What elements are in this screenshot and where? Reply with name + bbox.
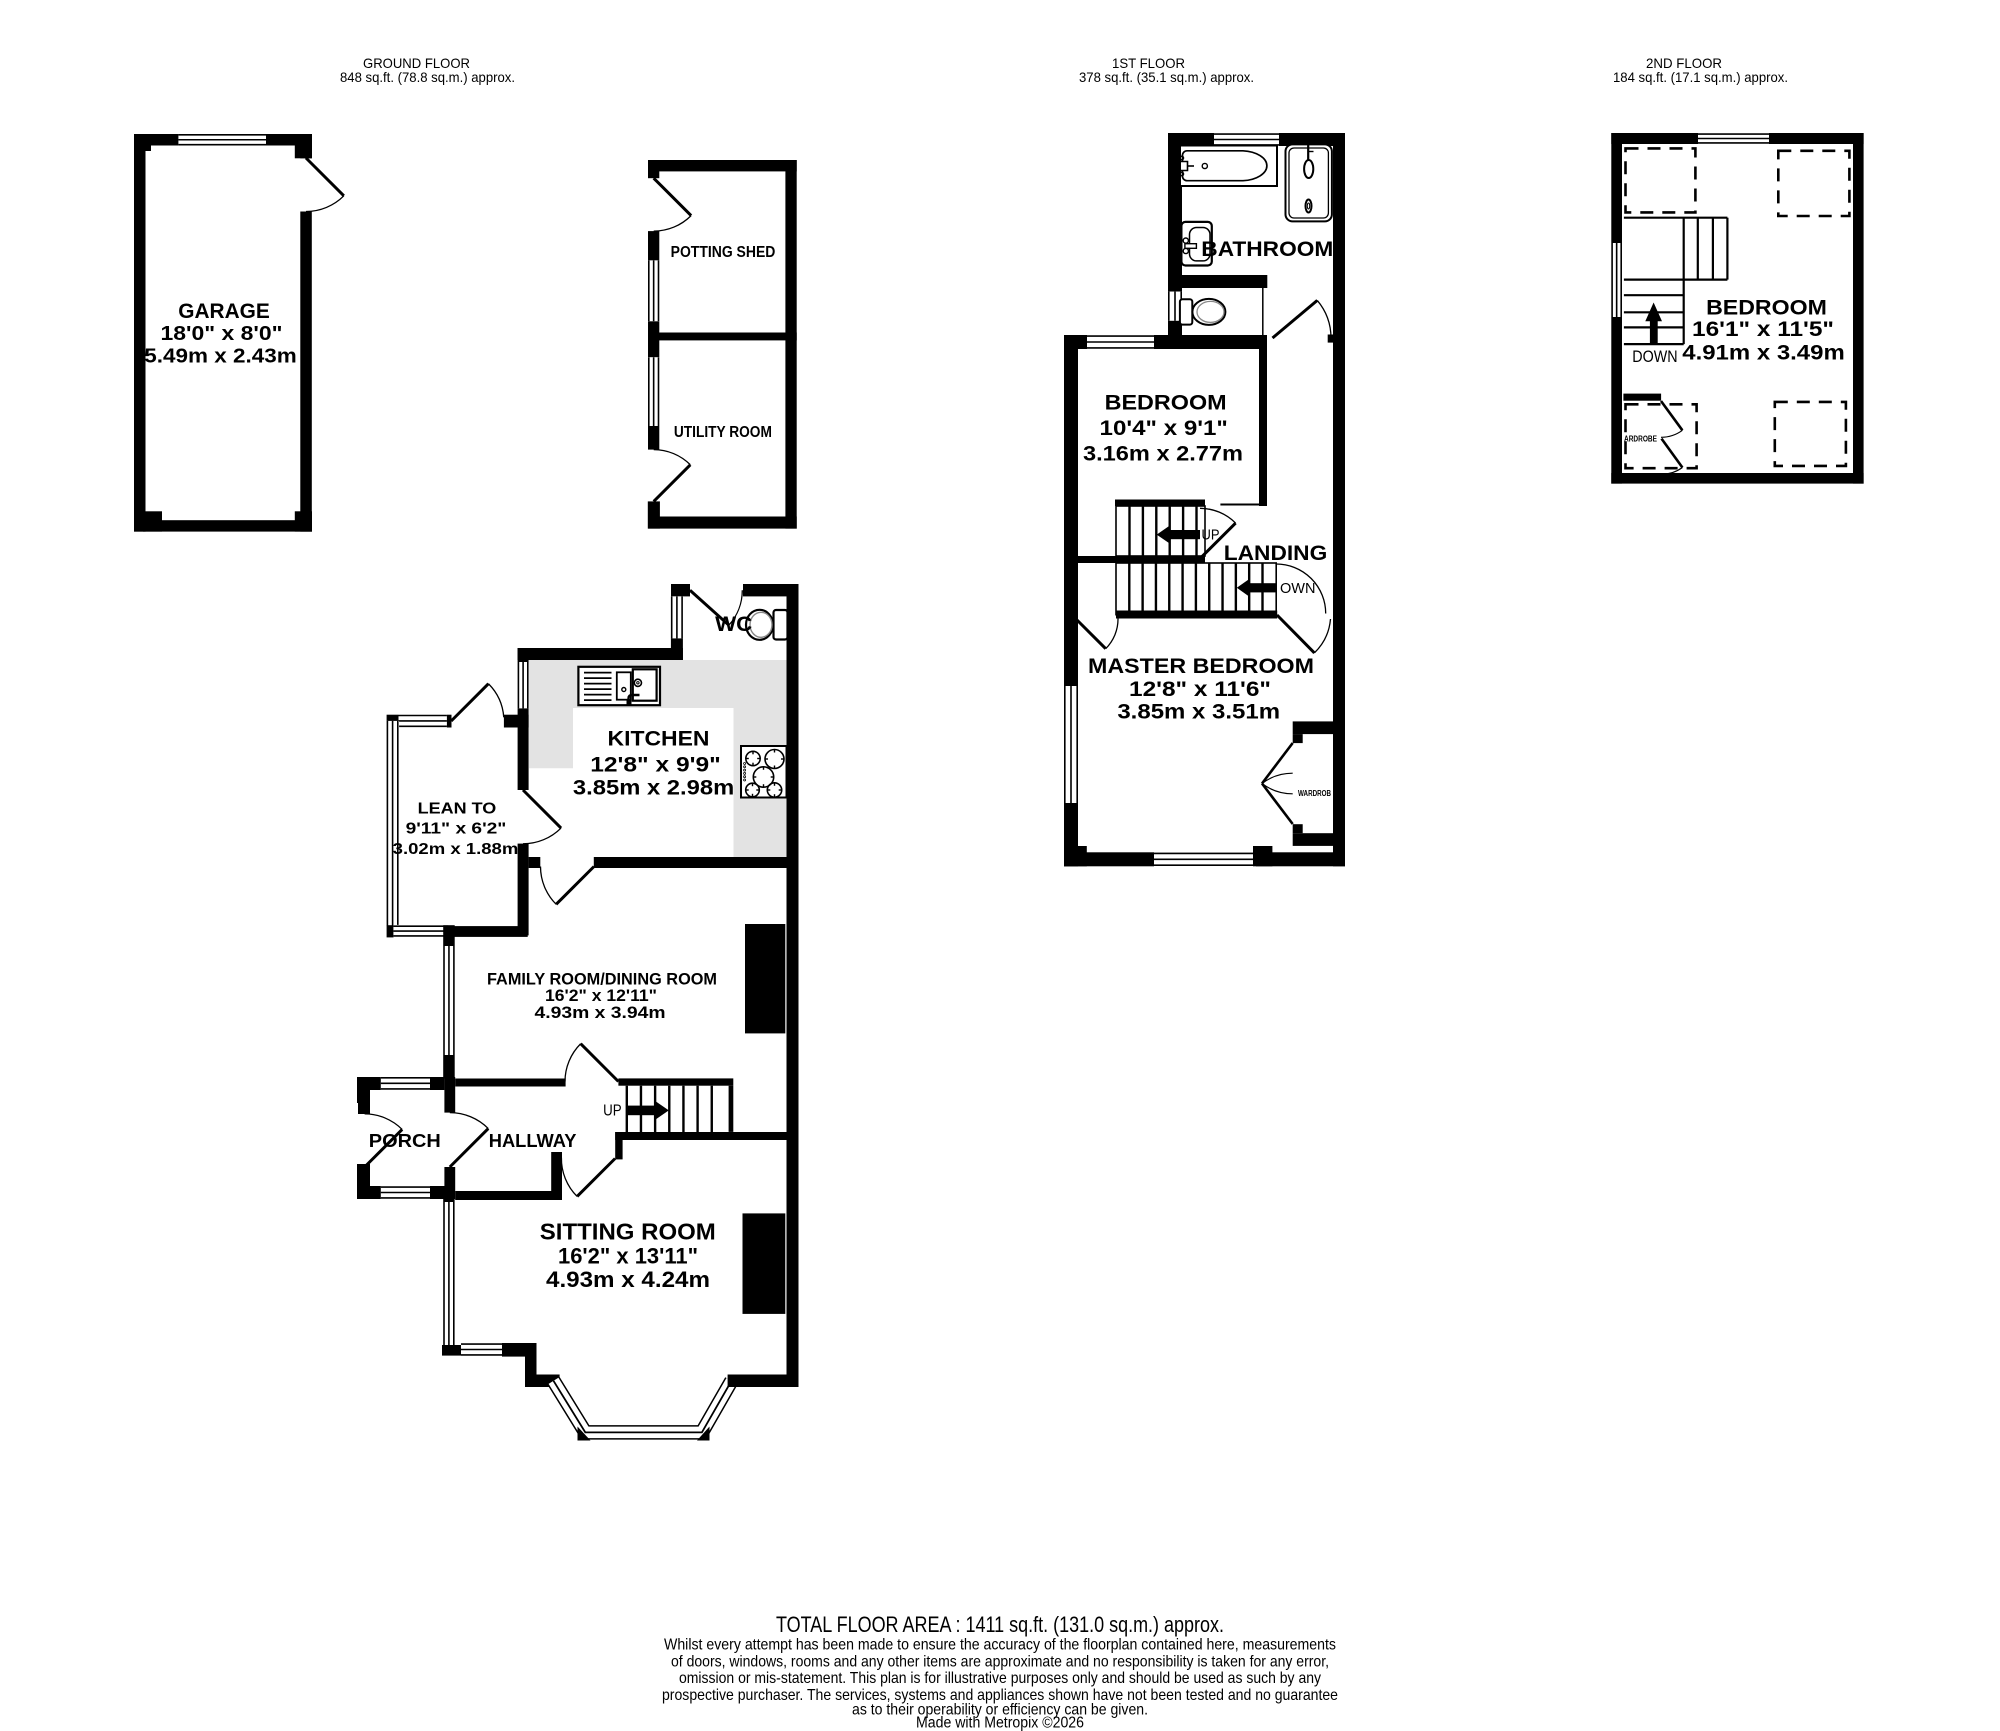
svg-text:16'2" x 13'11": 16'2" x 13'11" bbox=[558, 1244, 698, 1269]
svg-text:5.49m x 2.43m: 5.49m x 2.43m bbox=[144, 346, 297, 368]
svg-text:378 sq.ft. (35.1 sq.m.) approx: 378 sq.ft. (35.1 sq.m.) approx. bbox=[1079, 69, 1254, 85]
svg-text:OWN: OWN bbox=[1280, 580, 1316, 597]
svg-text:WC: WC bbox=[715, 613, 752, 636]
svg-text:4.93m x 3.94m: 4.93m x 3.94m bbox=[535, 1003, 666, 1022]
svg-text:LEAN TO: LEAN TO bbox=[418, 801, 497, 818]
svg-text:GARAGE: GARAGE bbox=[178, 300, 270, 323]
svg-text:BATHROOM: BATHROOM bbox=[1201, 238, 1333, 261]
svg-text:DOWN: DOWN bbox=[1632, 347, 1677, 366]
svg-text:HALLWAY: HALLWAY bbox=[489, 1131, 577, 1151]
svg-text:9'11" x 6'2": 9'11" x 6'2" bbox=[406, 821, 507, 838]
svg-text:12'8" x 9'9": 12'8" x 9'9" bbox=[590, 754, 721, 777]
svg-text:3.02m x 1.88m: 3.02m x 1.88m bbox=[393, 841, 519, 858]
svg-text:BEDROOM: BEDROOM bbox=[1706, 297, 1827, 320]
svg-text:LANDING: LANDING bbox=[1224, 542, 1328, 565]
svg-text:184 sq.ft. (17.1 sq.m.) approx: 184 sq.ft. (17.1 sq.m.) approx. bbox=[1613, 69, 1788, 85]
svg-text:3.16m x 2.77m: 3.16m x 2.77m bbox=[1083, 443, 1243, 466]
svg-text:UP: UP bbox=[603, 1103, 622, 1120]
svg-text:BEDROOM: BEDROOM bbox=[1105, 392, 1227, 415]
svg-text:4.93m x 4.24m: 4.93m x 4.24m bbox=[546, 1267, 710, 1292]
svg-text:Whilst every attempt has been: Whilst every attempt has been made to en… bbox=[664, 1637, 1336, 1654]
svg-text:Made with Metropix ©2026: Made with Metropix ©2026 bbox=[916, 1715, 1084, 1731]
svg-text:10'4" x 9'1": 10'4" x 9'1" bbox=[1100, 417, 1228, 440]
svg-text:12'8" x 11'6": 12'8" x 11'6" bbox=[1129, 678, 1271, 701]
svg-text:WARDROB: WARDROB bbox=[1298, 789, 1331, 798]
svg-text:omission or mis-statement. Thi: omission or mis-statement. This plan is … bbox=[679, 1670, 1321, 1687]
svg-text:POTTING SHED: POTTING SHED bbox=[671, 244, 776, 261]
svg-text:of doors, windows, rooms and a: of doors, windows, rooms and any other i… bbox=[671, 1653, 1329, 1670]
svg-text:MASTER BEDROOM: MASTER BEDROOM bbox=[1088, 655, 1314, 678]
svg-text:KITCHEN: KITCHEN bbox=[608, 728, 710, 751]
svg-text:PORCH: PORCH bbox=[369, 1131, 441, 1151]
svg-text:TOTAL FLOOR AREA : 1411 sq.ft.: TOTAL FLOOR AREA : 1411 sq.ft. (131.0 sq… bbox=[776, 1612, 1224, 1637]
svg-text:3.85m x 3.51m: 3.85m x 3.51m bbox=[1117, 701, 1280, 724]
svg-text:UTILITY ROOM: UTILITY ROOM bbox=[674, 424, 772, 441]
svg-text:SITTING ROOM: SITTING ROOM bbox=[540, 1219, 716, 1245]
svg-text:848 sq.ft. (78.8 sq.m.) approx: 848 sq.ft. (78.8 sq.m.) approx. bbox=[340, 69, 515, 85]
svg-text:ARDROBE: ARDROBE bbox=[1624, 435, 1658, 444]
svg-text:18'0" x 8'0": 18'0" x 8'0" bbox=[161, 323, 283, 345]
svg-text:4.91m x 3.49m: 4.91m x 3.49m bbox=[1682, 342, 1845, 365]
svg-text:16'1" x 11'5": 16'1" x 11'5" bbox=[1692, 318, 1834, 341]
svg-text:3.85m x 2.98m: 3.85m x 2.98m bbox=[573, 777, 734, 800]
